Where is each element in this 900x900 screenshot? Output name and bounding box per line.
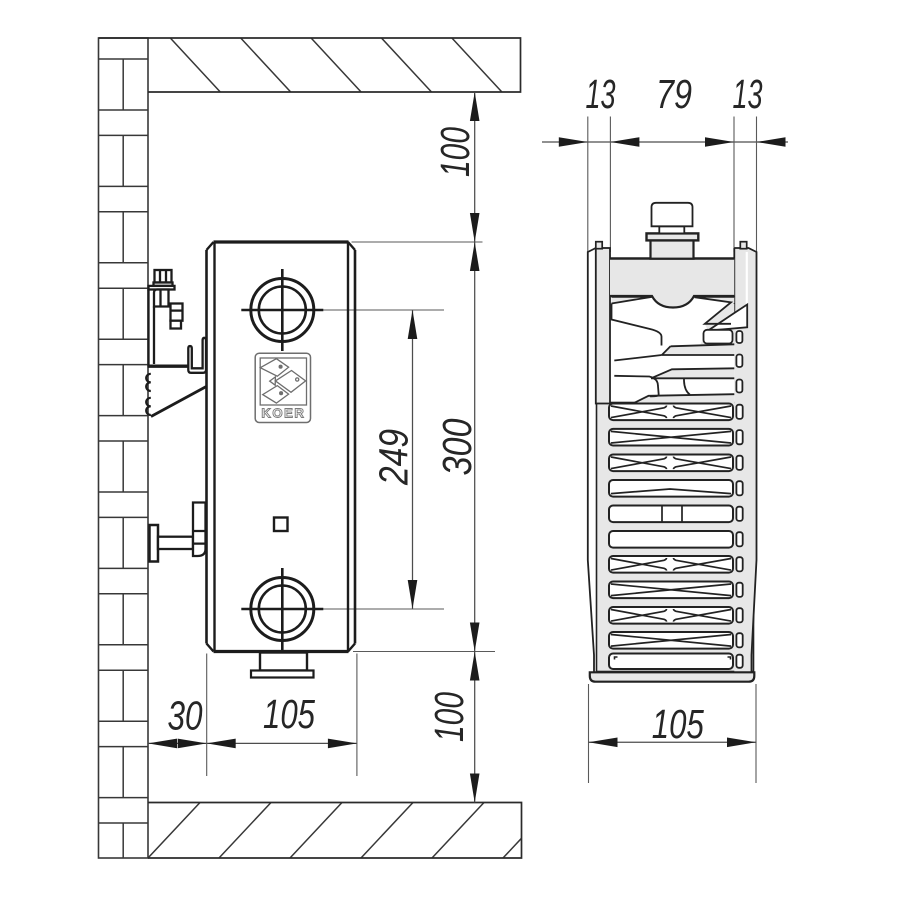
- svg-text:KOER: KOER: [261, 406, 305, 421]
- svg-text:249: 249: [371, 429, 417, 486]
- svg-text:100: 100: [432, 127, 478, 177]
- svg-text:100: 100: [426, 692, 472, 742]
- svg-text:13: 13: [586, 71, 616, 117]
- svg-text:105: 105: [652, 701, 704, 747]
- svg-text:300: 300: [434, 418, 480, 475]
- svg-text:30: 30: [168, 692, 203, 738]
- svg-text:13: 13: [733, 71, 763, 117]
- svg-text:105: 105: [263, 691, 315, 737]
- svg-text:79: 79: [656, 71, 692, 117]
